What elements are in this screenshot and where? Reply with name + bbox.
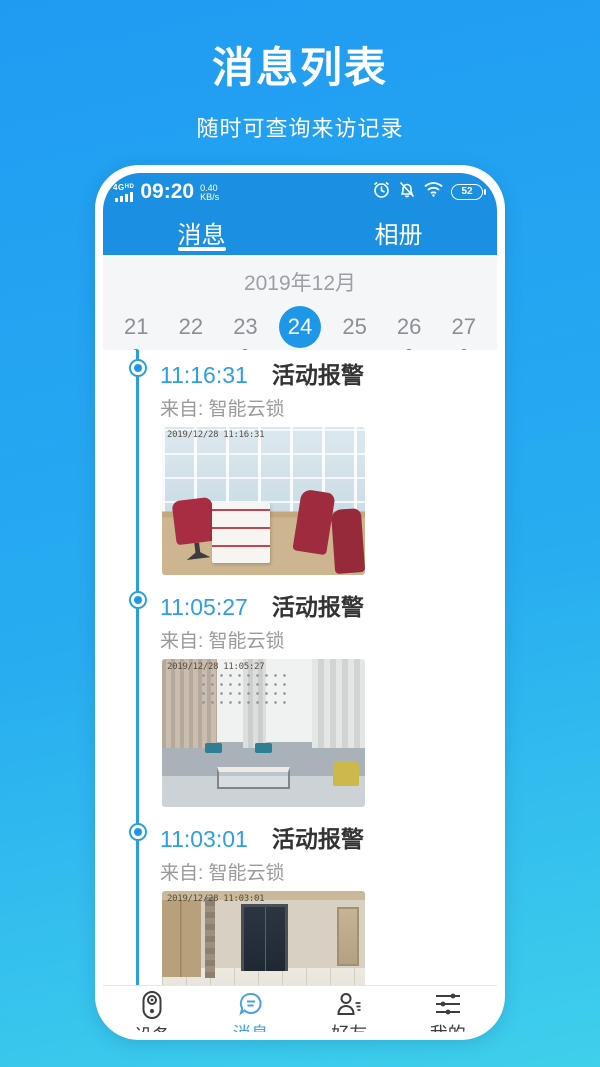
tab-messages[interactable]: 消息 xyxy=(103,210,300,255)
timeline-line xyxy=(136,350,139,985)
active-tab-underline xyxy=(178,247,226,251)
timeline-dot xyxy=(129,823,147,841)
photo-timestamp: 2019/12/28 11:03:01 xyxy=(167,894,264,904)
calendar-strip: 2019年12月 21 22 23 24 25 26 27 xyxy=(103,255,497,350)
message-type: 活动报警 xyxy=(272,820,364,854)
message-photo[interactable]: 2019/12/28 11:03:01 xyxy=(162,891,365,985)
tab-album[interactable]: 相册 xyxy=(300,210,497,255)
wifi-icon xyxy=(423,181,444,202)
message-time: 11:05:27 xyxy=(160,594,248,621)
message-source: 来自: 智能云锁 xyxy=(160,858,497,885)
message-photo[interactable]: 2019/12/28 11:16:31 xyxy=(162,427,365,575)
message-item[interactable]: 11:03:01 活动报警 来自: 智能云锁 2019/12/28 11:03:… xyxy=(160,820,497,985)
nav-item-devices[interactable]: 设备 xyxy=(103,990,202,1032)
timeline-dot xyxy=(129,591,147,609)
message-item[interactable]: 11:16:31 活动报警 来自: 智能云锁 2019/12/28 11:16:… xyxy=(160,356,497,575)
nav-label: 好友 xyxy=(331,1020,367,1032)
calendar-month-label: 2019年12月 xyxy=(103,267,497,297)
message-list: 11:16:31 活动报警 来自: 智能云锁 2019/12/28 11:16:… xyxy=(103,350,497,985)
photo-timestamp: 2019/12/28 11:16:31 xyxy=(167,430,264,440)
phone-mockup: 4GHD 09:20 0.40 KB/s xyxy=(95,165,505,1040)
nav-item-profile[interactable]: 我的 xyxy=(399,990,498,1032)
page-subtitle: 随时可查询来访记录 xyxy=(0,111,600,143)
photo-office-chair xyxy=(171,497,216,546)
hero-header: 消息列表 随时可查询来访记录 xyxy=(0,0,600,143)
message-time: 11:16:31 xyxy=(160,362,248,389)
nav-label: 设备 xyxy=(134,1022,170,1032)
message-item[interactable]: 11:05:27 活动报警 来自: 智能云锁 2019/12/28 11:05:… xyxy=(160,588,497,807)
timeline-dot xyxy=(129,359,147,377)
friends-icon xyxy=(335,990,363,1018)
nav-item-messages[interactable]: 消息 xyxy=(202,990,301,1032)
profile-icon xyxy=(434,990,462,1018)
message-source: 来自: 智能云锁 xyxy=(160,394,497,421)
bell-muted-icon xyxy=(398,180,416,204)
photo-timestamp: 2019/12/28 11:05:27 xyxy=(167,662,264,672)
tab-bar: 消息 相册 xyxy=(103,210,497,255)
message-type: 活动报警 xyxy=(272,588,364,622)
message-icon xyxy=(237,990,265,1018)
alarm-clock-icon xyxy=(372,180,391,204)
page-title: 消息列表 xyxy=(0,34,600,95)
status-bar: 4GHD 09:20 0.40 KB/s xyxy=(103,173,497,210)
nav-label: 消息 xyxy=(233,1020,269,1032)
message-type: 活动报警 xyxy=(272,356,364,390)
message-time: 11:03:01 xyxy=(160,826,248,853)
battery-icon: 52 xyxy=(451,184,483,200)
message-photo[interactable]: 2019/12/28 11:05:27 xyxy=(162,659,365,807)
signal-icon: 4GHD xyxy=(113,184,134,202)
phone-screen: 4GHD 09:20 0.40 KB/s xyxy=(103,173,497,1032)
bottom-nav: 设备 消息 好友 xyxy=(103,985,497,1032)
photo-office-desk xyxy=(212,503,270,563)
device-icon xyxy=(139,990,165,1020)
network-speed: 0.40 KB/s xyxy=(200,184,219,202)
nav-item-friends[interactable]: 好友 xyxy=(300,990,399,1032)
message-source: 来自: 智能云锁 xyxy=(160,626,497,653)
nav-label: 我的 xyxy=(430,1020,466,1032)
status-time: 09:20 xyxy=(140,181,194,202)
